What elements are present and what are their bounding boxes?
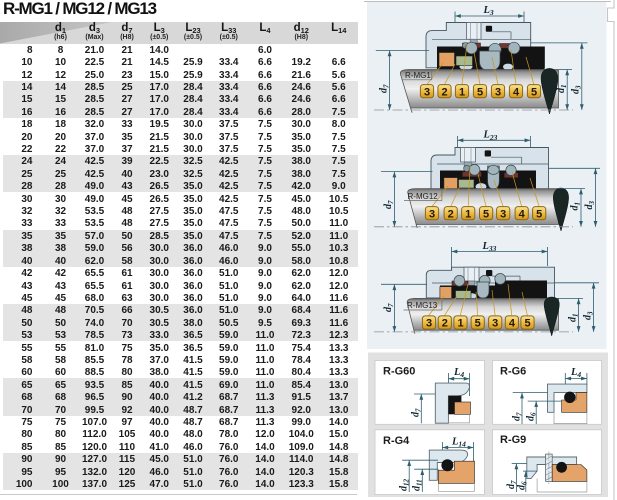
- svg-text:2: 2: [448, 208, 454, 220]
- svg-text:5: 5: [477, 86, 483, 98]
- svg-text:1: 1: [457, 318, 463, 330]
- svg-text:5: 5: [536, 208, 542, 220]
- svg-text:R-G6: R-G6: [500, 366, 526, 378]
- svg-text:R-MG12: R-MG12: [408, 192, 439, 201]
- svg-text:3: 3: [429, 208, 435, 220]
- svg-text:5: 5: [475, 318, 481, 330]
- svg-text:4: 4: [513, 86, 520, 98]
- svg-text:3: 3: [492, 318, 498, 330]
- svg-text:R-MG1: R-MG1: [405, 71, 431, 80]
- svg-text:3: 3: [495, 86, 501, 98]
- svg-text:4: 4: [509, 318, 516, 330]
- svg-text:R-G9: R-G9: [500, 434, 526, 446]
- svg-text:5: 5: [531, 86, 537, 98]
- svg-text:R-G4: R-G4: [383, 435, 410, 447]
- svg-text:5: 5: [483, 208, 489, 220]
- svg-text:3: 3: [426, 318, 432, 330]
- svg-text:4: 4: [519, 208, 526, 220]
- svg-text:3: 3: [500, 208, 506, 220]
- svg-text:1: 1: [459, 86, 465, 98]
- svg-text:2: 2: [441, 86, 447, 98]
- svg-text:5: 5: [524, 318, 530, 330]
- svg-text:2: 2: [442, 318, 448, 330]
- svg-text:1: 1: [465, 208, 471, 220]
- svg-text:R-G60: R-G60: [383, 366, 415, 378]
- svg-text:3: 3: [424, 86, 430, 98]
- svg-text:R-MG13: R-MG13: [407, 301, 438, 310]
